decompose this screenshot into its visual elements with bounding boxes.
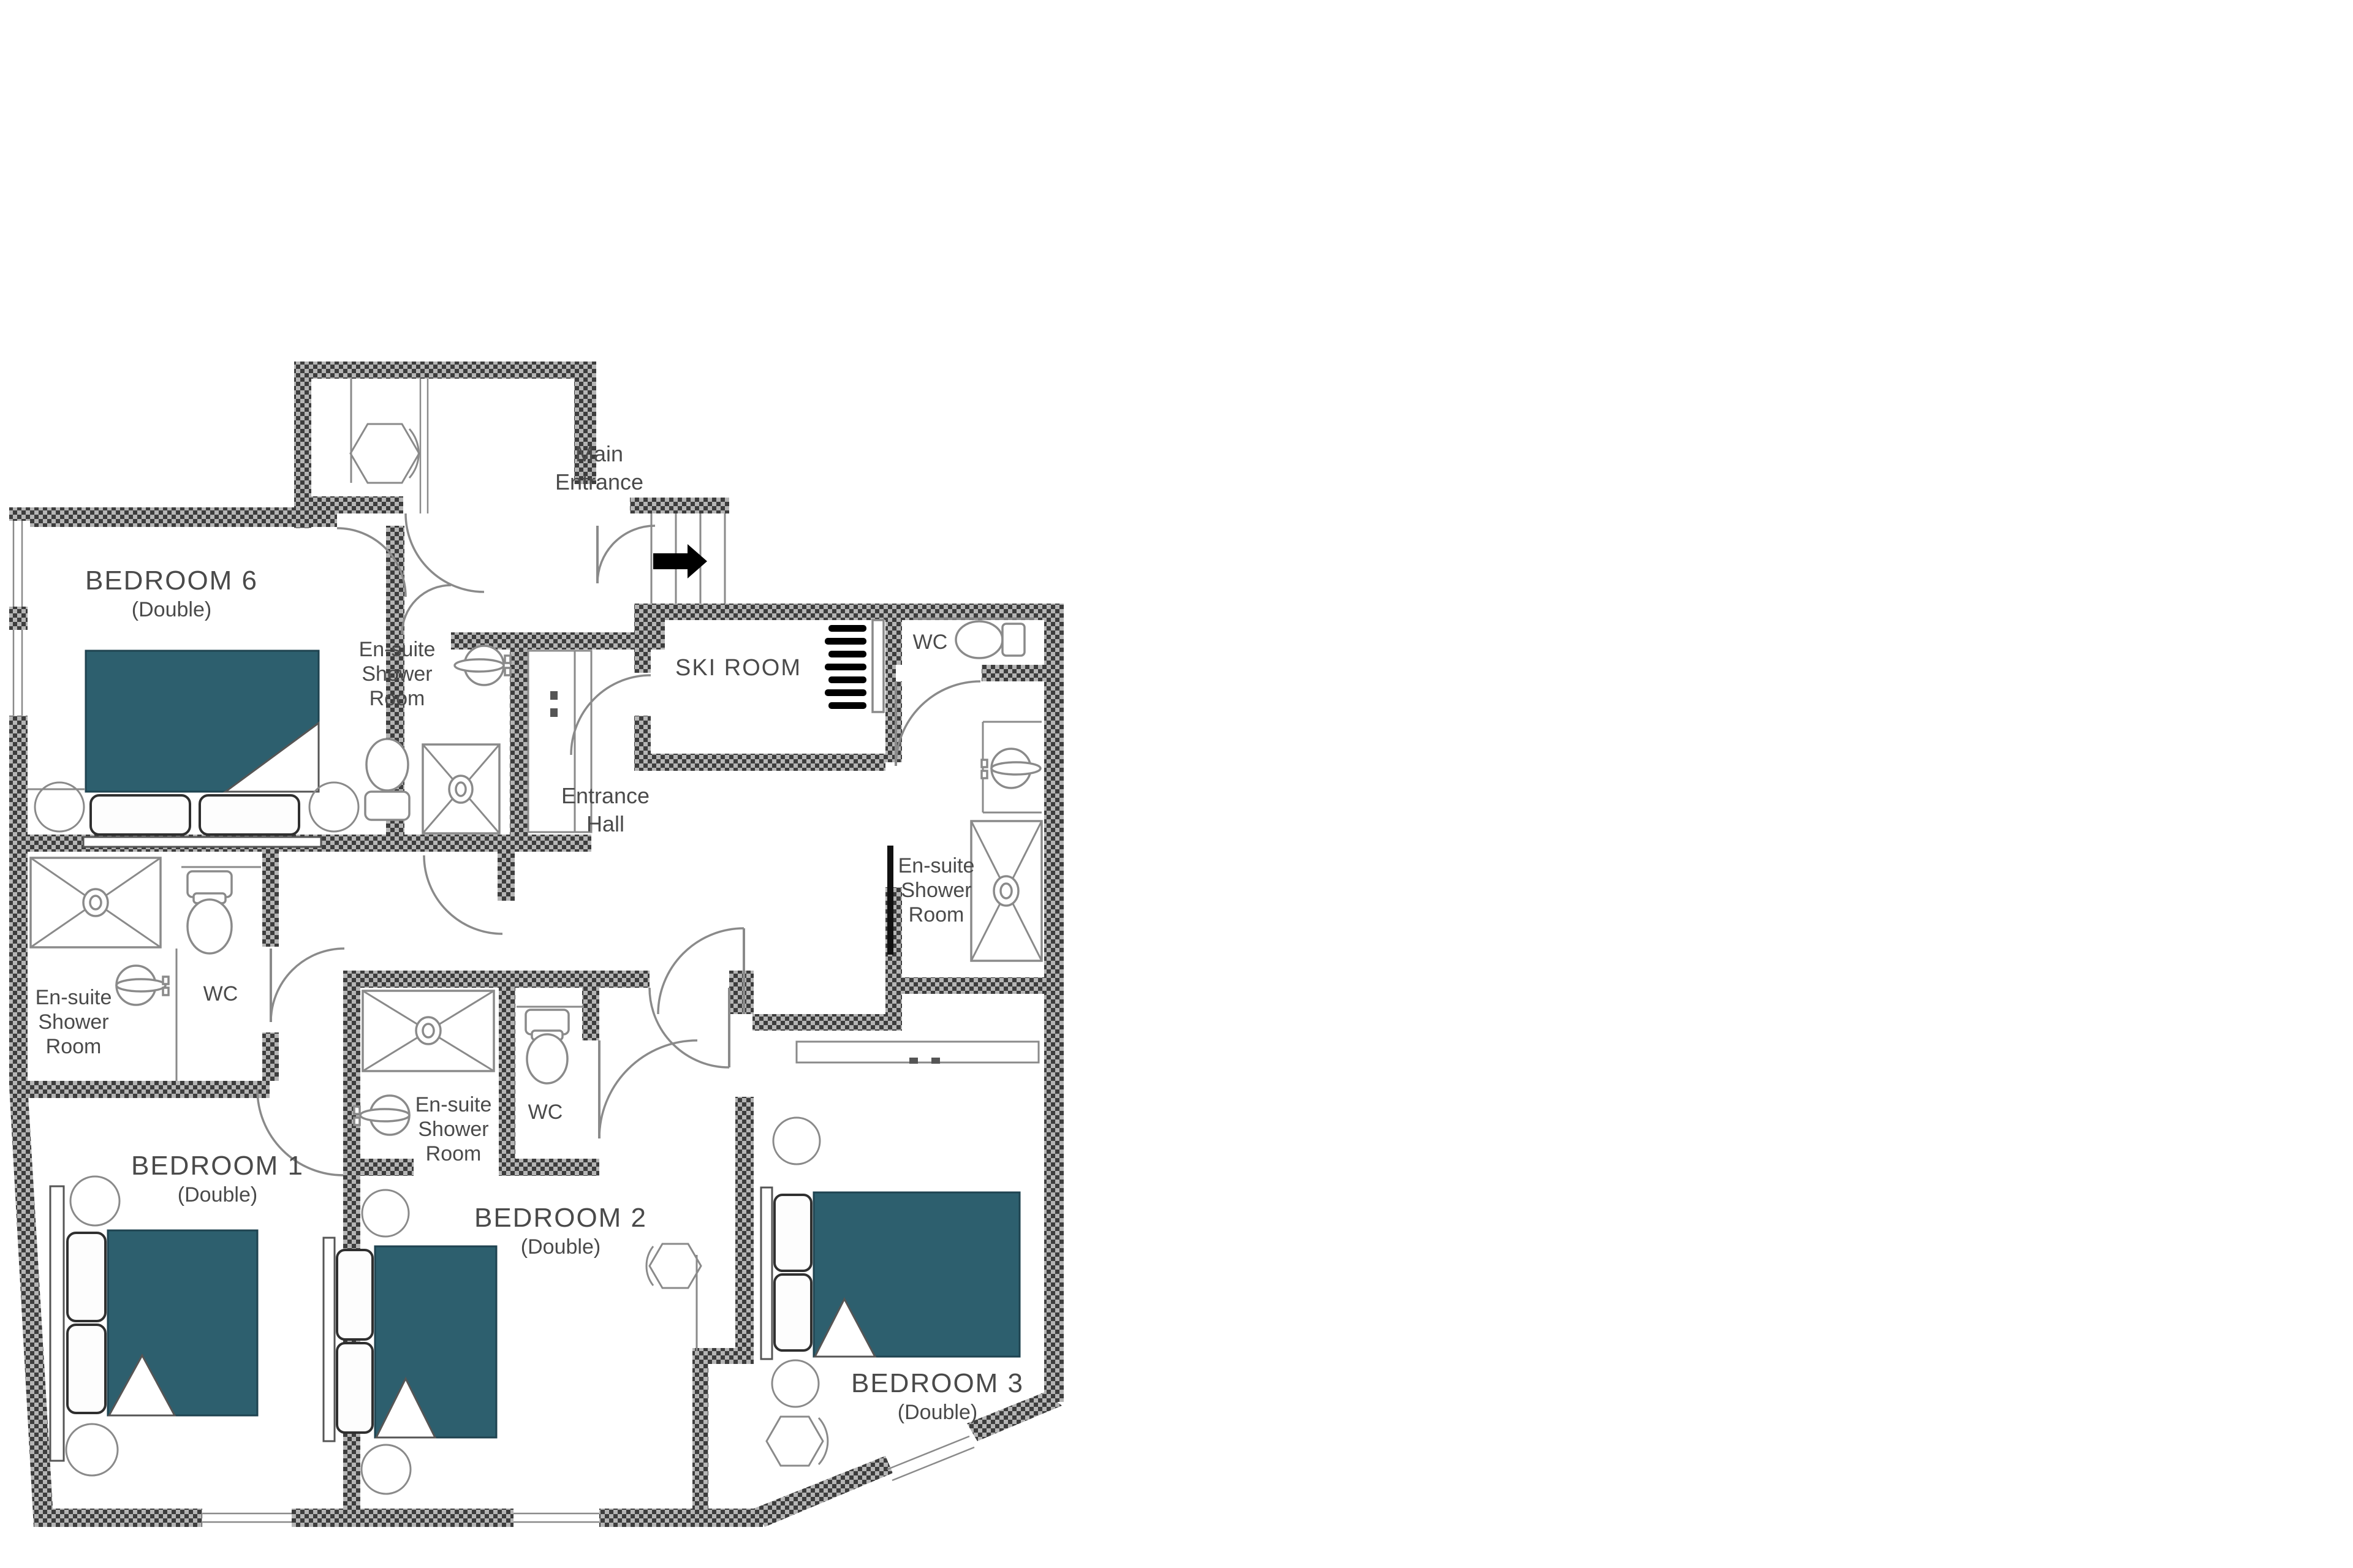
bed-bedroom1 xyxy=(50,1176,257,1475)
sliding-door-leaf xyxy=(887,846,893,955)
staircase xyxy=(651,513,725,604)
floorplan-drawing xyxy=(0,0,2353,1568)
label-wc-top-right: WC xyxy=(913,630,948,654)
label-bedroom-1: BEDROOM 1(Double) xyxy=(131,1151,304,1208)
ensuite-right-fixtures xyxy=(971,722,1042,961)
window-bedroom6-upper xyxy=(7,521,30,607)
shower-tray-icon xyxy=(31,858,161,947)
bedside-table xyxy=(66,1424,118,1475)
chair-bedroom3 xyxy=(767,1417,828,1466)
door-main-entrance xyxy=(597,526,655,583)
bedside-table xyxy=(362,1190,409,1237)
door-wc-right xyxy=(896,681,980,766)
wardrobe-bedroom3 xyxy=(797,1042,1039,1064)
bed-bedroom6 xyxy=(28,651,358,847)
label-ensuite-2: En-suiteShowerRoom xyxy=(415,1093,492,1166)
label-main-entrance: MainEntrance xyxy=(555,440,643,496)
label-bedroom-6: BEDROOM 6(Double) xyxy=(85,566,258,623)
chair-bedroom2 xyxy=(646,1244,701,1351)
bed-bedroom3 xyxy=(761,1118,1020,1407)
window-bedroom3-diagonal xyxy=(887,1436,974,1480)
toilet-icon xyxy=(956,621,1025,658)
toilet-icon xyxy=(526,1010,569,1083)
sink-icon xyxy=(982,749,1040,788)
door-arc-top-bathroom xyxy=(406,513,484,592)
label-entrance-hall: EntranceHall xyxy=(561,782,650,838)
door-wc-left xyxy=(271,949,344,1022)
wc-2-fixtures xyxy=(517,1007,584,1083)
shower-tray-icon xyxy=(363,991,494,1071)
shower-enclosure-icon xyxy=(350,424,419,483)
sink-icon xyxy=(455,646,510,685)
label-bedroom-3: BEDROOM 3(Double) xyxy=(851,1368,1024,1426)
label-wc-left: WC xyxy=(203,982,238,1006)
door-arc-corridor xyxy=(424,855,502,934)
top-bathroom-fixtures xyxy=(350,379,428,513)
bedside-table xyxy=(70,1176,119,1225)
bedside-table xyxy=(362,1445,411,1494)
label-ensuite-left: En-suiteShowerRoom xyxy=(36,985,112,1059)
toilet-icon xyxy=(188,871,232,953)
label-ensuite-right: En-suiteShowerRoom xyxy=(898,854,975,927)
shower-tray-icon xyxy=(971,821,1042,961)
toilet-icon xyxy=(365,739,409,820)
door-wc2 xyxy=(599,1040,697,1138)
ski-room-fixtures xyxy=(825,620,884,712)
window-bedroom6-lower xyxy=(7,630,30,716)
floorplan-page: MainEntrance BEDROOM 6(Double) En-suiteS… xyxy=(0,0,2353,1568)
label-wc-2: WC xyxy=(528,1100,563,1124)
bedside-table xyxy=(309,782,358,831)
label-ski-room: SKI ROOM xyxy=(675,656,801,680)
door-bedroom2 xyxy=(650,988,729,1067)
direction-arrow-icon xyxy=(653,544,707,578)
label-bedroom-2: BEDROOM 2(Double) xyxy=(474,1203,647,1260)
shower-tray-icon xyxy=(423,744,499,833)
label-ensuite-top: En-suiteShowerRoom xyxy=(359,637,436,711)
sink-icon xyxy=(116,966,169,1005)
door-arc-ensuite-top xyxy=(402,585,451,634)
window-bedroom2 xyxy=(513,1506,599,1529)
wc-left-fixtures xyxy=(181,867,261,953)
bedside-table xyxy=(773,1118,820,1164)
window-bedroom1 xyxy=(202,1506,292,1529)
ski-rack-icon xyxy=(825,625,866,709)
sink-icon xyxy=(354,1096,409,1135)
bedside-table xyxy=(772,1360,819,1407)
